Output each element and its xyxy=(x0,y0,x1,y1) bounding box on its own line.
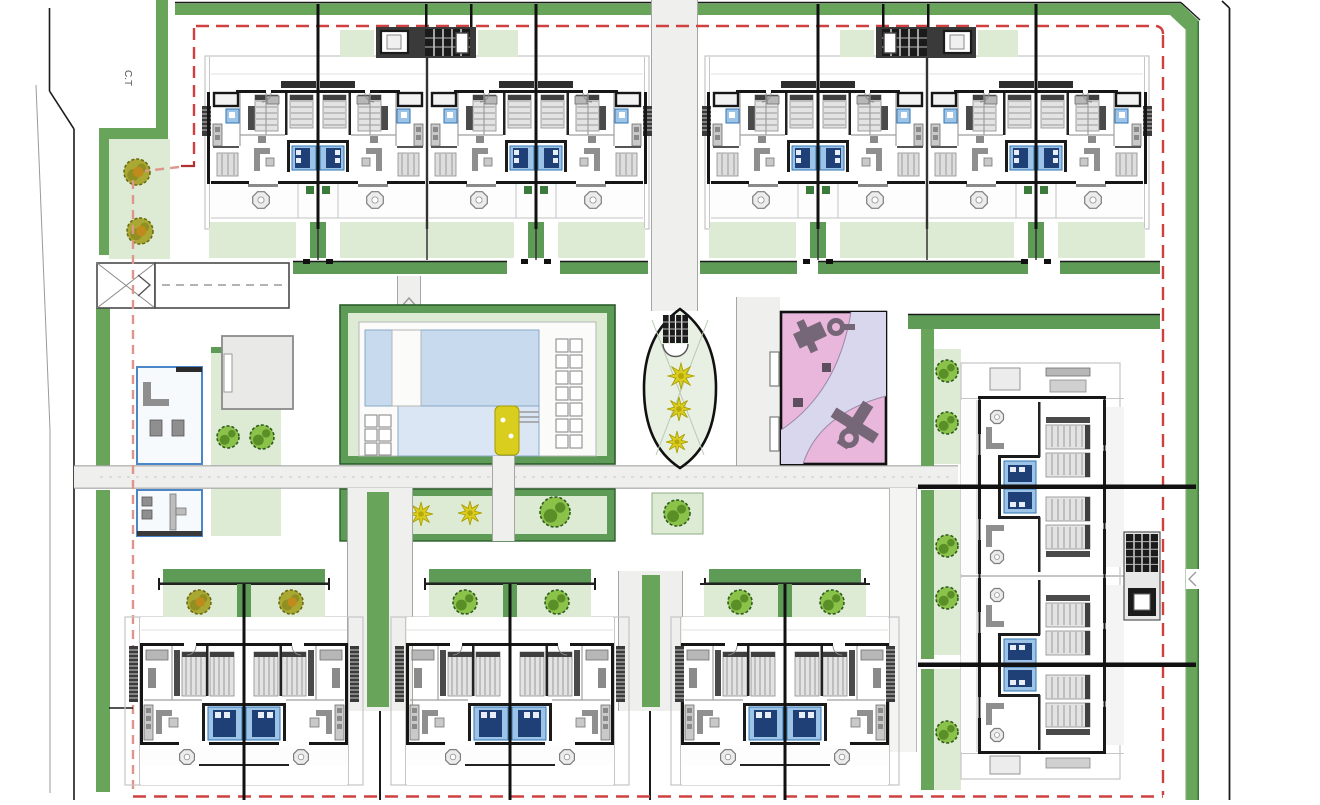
svg-text:C.T: C.T xyxy=(122,70,133,86)
